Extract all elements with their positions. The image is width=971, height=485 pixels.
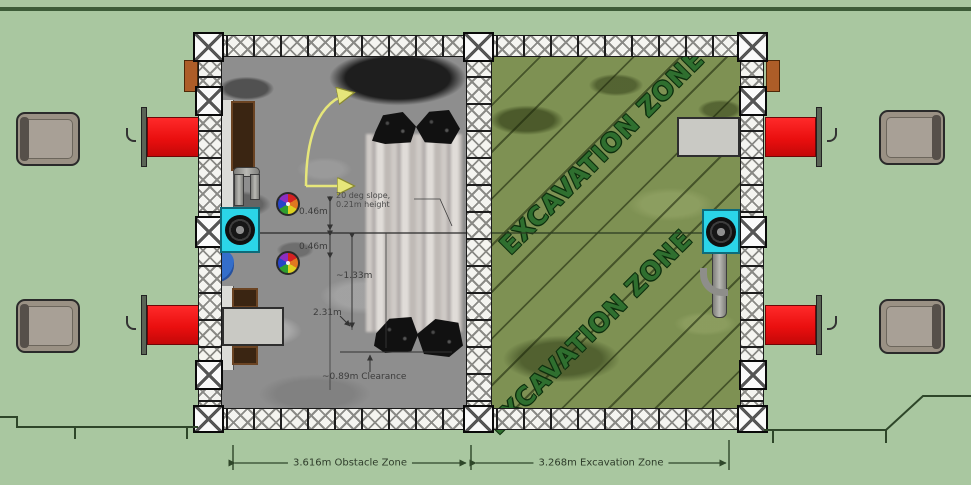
chair-seat [886,306,938,347]
chair-seat [23,306,73,346]
red-table-left-top-lever [126,128,136,142]
chair-left-bottom [16,299,80,353]
slope-note-line2: 0.21m height [336,200,390,209]
fan-icon [706,217,736,247]
dim-label-231: 2.31m [313,308,342,318]
red-table-right-top-bar [816,107,822,167]
chair-left-top [16,112,80,166]
chair-back [20,117,29,161]
inner-table-right [677,117,740,157]
dim-label-046-top: 0.46m [299,207,328,217]
chair-back [932,304,941,349]
red-table-left-top [147,117,199,157]
chair-seat [886,117,938,158]
panel-bottom-lower [232,346,258,365]
joint-right-upper [739,86,767,116]
joint-top-center [463,32,494,62]
orange-peg-right [766,60,780,92]
red-table-left-bottom-bar [141,295,147,355]
truss-center-divider [466,35,492,430]
inner-table-left [222,307,284,346]
red-table-right-bottom-lever [827,316,837,330]
pinwheel-target-bottom [276,251,300,275]
chair-right-bottom [879,299,945,354]
joint-right-mid [739,216,767,248]
joint-top-right [737,32,768,62]
chair-back [932,115,941,160]
dim-label-133: ~1.33m [336,271,372,281]
panel-bottom-upper [232,288,258,308]
joint-left-mid [195,216,223,248]
joint-bottom-left [193,405,224,433]
joint-bottom-right [737,405,768,433]
fan-icon [225,215,255,245]
fan-box-left [220,207,260,253]
top-border-line [0,7,971,11]
slope-note-line1: 20 deg slope, [336,191,390,200]
excavation-zone-dimension-label: 3.268m Excavation Zone [533,458,668,469]
fan-box-right [702,209,740,254]
red-table-left-bottom-lever [126,316,136,330]
red-table-right-bottom [765,305,816,345]
bin-pipe-leg-right [250,174,260,200]
ramp-structure [366,134,462,332]
joint-top-left [193,32,224,62]
chair-right-top [879,110,945,165]
pinwheel-target-top [276,192,300,216]
clearance-label: ~0.89m Clearance [322,372,406,382]
red-table-left-top-bar [141,107,147,167]
red-table-right-top-lever [827,128,837,142]
joint-left-upper [195,86,223,116]
collection-bin-top [231,101,255,171]
red-table-left-bottom [147,305,199,345]
joint-bottom-center [463,405,494,433]
dim-label-046-mid: 0.46m [299,242,328,252]
floor-outline-right [764,396,971,443]
joint-right-lower [739,360,767,390]
floor-outline-left [0,417,198,439]
bin-pipe-leg-left [234,174,244,206]
chair-back [20,304,29,348]
joint-left-lower [195,360,223,390]
obstacle-zone-dimension-label: 3.616m Obstacle Zone [288,458,412,469]
red-table-right-top [765,117,816,157]
arena-plan-canvas: EXCAVATION ZONE EXCAVATION ZONE [0,0,971,485]
slope-note: 20 deg slope, 0.21m height [336,191,390,209]
chair-seat [23,119,73,159]
red-table-right-bottom-bar [816,295,822,355]
